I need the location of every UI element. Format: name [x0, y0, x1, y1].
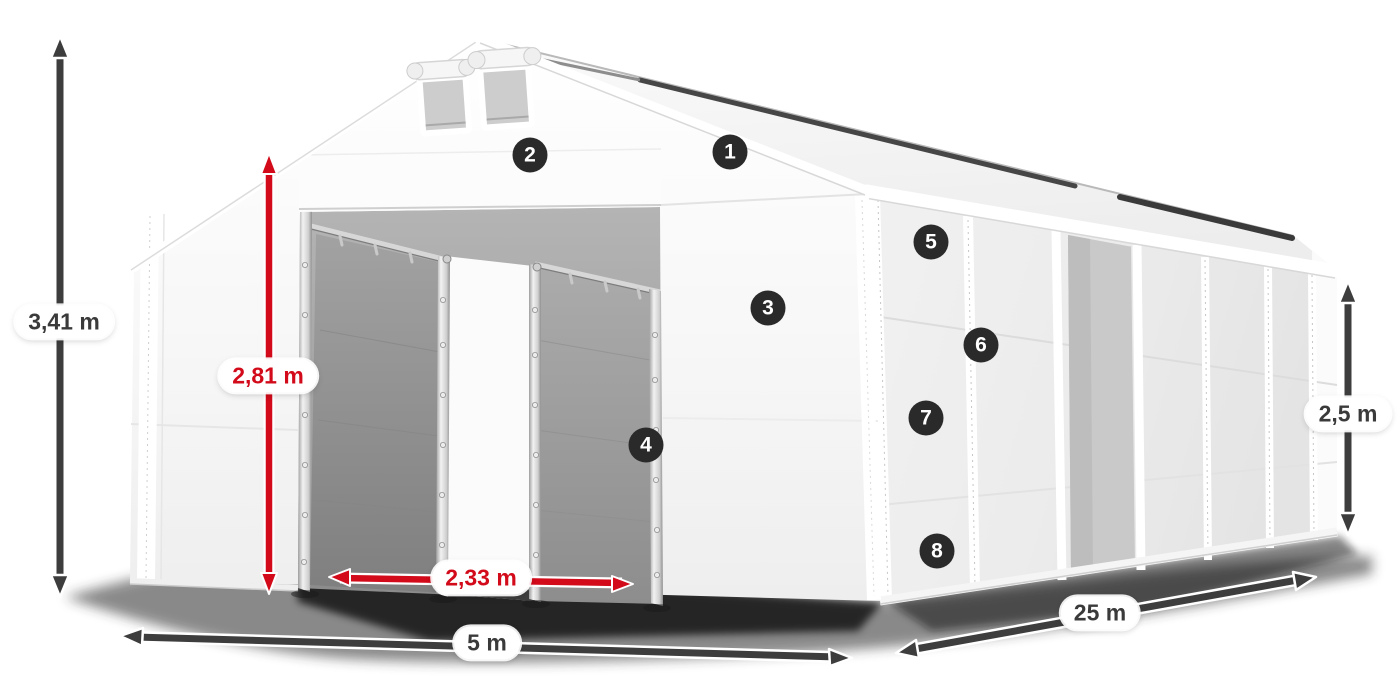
entrance-valance [299, 146, 661, 212]
width-label: 5 m [454, 626, 520, 659]
feature-marker-3: 3 [751, 291, 786, 326]
feature-marker-1: 1 [713, 135, 748, 170]
entrance-gap [445, 256, 533, 601]
feature-marker-5: 5 [914, 225, 949, 260]
tent-dimension-diagram: 3,41 m 2,81 m 2,33 m 5 m 25 m 2,5 m 1 2 … [0, 0, 1400, 700]
side-height-label: 2,5 m [1306, 397, 1391, 430]
interior-curtain-left [310, 234, 443, 593]
length-label: 25 m [1061, 596, 1139, 629]
feature-marker-7: 7 [909, 401, 944, 436]
entrance-width-label: 2,33 m [432, 561, 530, 594]
entrance-height-label: 2,81 m [219, 359, 317, 392]
feature-marker-6: 6 [964, 328, 999, 363]
feature-marker-4: 4 [629, 428, 664, 463]
side-door-opening [1068, 235, 1139, 577]
tent-illustration [0, 0, 1400, 700]
entrance-opening [291, 207, 671, 612]
feature-marker-2: 2 [513, 138, 548, 173]
feature-marker-8: 8 [920, 534, 955, 569]
total-height-label: 3,41 m [15, 305, 113, 338]
